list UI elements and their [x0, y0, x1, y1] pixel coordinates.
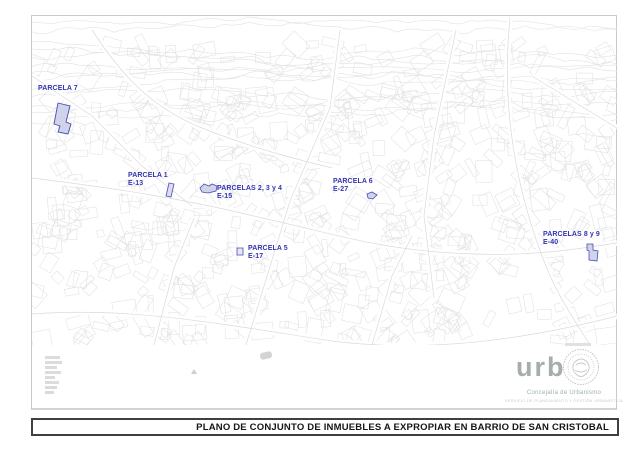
parcel-name: PARCELA 1	[128, 172, 168, 180]
logo-department: Concejalía de Urbanismo	[505, 390, 623, 396]
stamp-lines-block-2	[45, 386, 57, 396]
parcel-shape-8-9	[587, 244, 598, 261]
north-arrow-icon	[191, 369, 197, 374]
parcel-name: PARCELA 6	[333, 178, 373, 186]
parcel-code: E-17	[248, 253, 288, 261]
parcel-code: E-40	[543, 239, 600, 247]
parcel-name: PARCELAS 8 y 9	[543, 231, 600, 239]
parcel-shape-5	[237, 248, 243, 255]
parcel-label-5: PARCELA 5E-17	[248, 245, 288, 260]
municipal-seal-icon	[558, 343, 604, 389]
plan-sheet-page: PARCELA 7 PARCELA 1E-13 PARCELAS 2, 3 y …	[0, 0, 640, 452]
parcel-name: PARCELAS 2, 3 y 4	[217, 185, 282, 193]
parcel-shape-2-3-4	[200, 184, 217, 193]
parcel-name: PARCELA 5	[248, 245, 288, 253]
parcel-name: PARCELA 7	[38, 85, 78, 93]
expropriation-parcels-layer	[32, 16, 617, 345]
logo-service-line: SERVICIO DE PLANEAMIENTO Y GESTIÓN URBAN…	[505, 398, 623, 403]
parcel-shape-6	[367, 192, 377, 199]
parcel-code: E-15	[217, 193, 282, 201]
parcel-code: E-27	[333, 186, 373, 194]
parcel-code: E-13	[128, 180, 168, 188]
seal-caption-mark	[565, 343, 591, 346]
stamp-lines-block	[45, 356, 62, 386]
parcel-label-1: PARCELA 1E-13	[128, 172, 168, 187]
parcel-label-6: PARCELA 6E-27	[333, 178, 373, 193]
parcel-label-2-3-4: PARCELAS 2, 3 y 4E-15	[217, 185, 282, 200]
urbanism-office-logo: urb Concejalía de Urbanismo SERVICIO DE …	[505, 340, 623, 408]
parcel-shape-7	[54, 103, 71, 134]
title-bar: PLANO DE CONJUNTO DE INMUEBLES A EXPROPI…	[31, 418, 619, 436]
parcel-label-7: PARCELA 7	[38, 85, 78, 93]
sheet-title: PLANO DE CONJUNTO DE INMUEBLES A EXPROPI…	[196, 422, 609, 433]
parcel-label-8-9: PARCELAS 8 y 9E-40	[543, 231, 600, 246]
